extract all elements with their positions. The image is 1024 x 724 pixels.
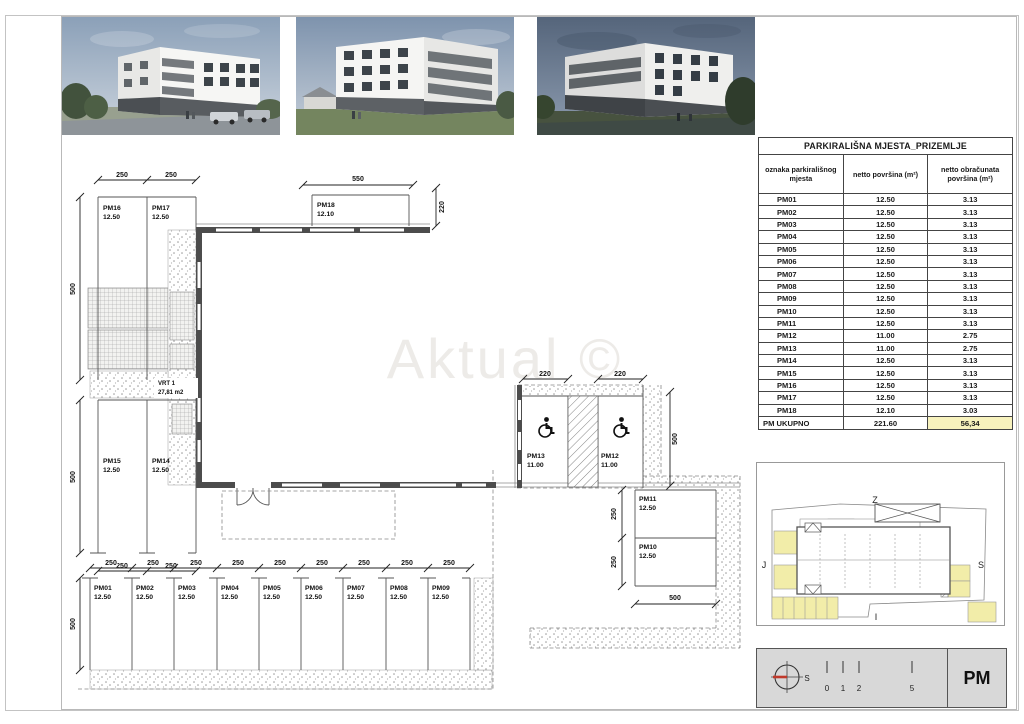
table-row: PM0512.503.13 [759,243,1013,255]
cell-netto: 12.50 [843,255,928,267]
cell-obracunata: 3.13 [928,317,1013,329]
svg-text:250: 250 [274,560,286,567]
table-row: PM1612.503.13 [759,379,1013,391]
svg-text:220: 220 [439,201,446,213]
total-obracunata: 56,34 [928,417,1013,430]
table-row: PM1211.002.75 [759,330,1013,342]
orientation-label-z: Z [872,495,878,505]
wheelchair-icon [614,417,630,437]
north-arrow-icon [771,661,803,693]
north-label: S [804,674,809,683]
svg-text:PM14: PM14 [152,458,170,465]
cell-obracunata: 3.03 [928,404,1013,416]
svg-text:PM01: PM01 [94,585,112,592]
svg-text:550: 550 [352,176,364,183]
svg-text:PM02: PM02 [136,585,154,592]
cell-obracunata: 3.13 [928,218,1013,230]
cell-stall-id: PM12 [759,330,844,342]
parking-table: PARKIRALIŠNA MJESTA_PRIZEMLJE oznaka par… [758,137,1013,430]
garden-label: VRT 1 27,81 m2 [154,378,198,398]
cell-netto: 12.50 [843,392,928,404]
svg-text:12.50: 12.50 [347,594,364,601]
orientation-label-i: I [875,612,878,622]
table-row: PM0212.503.13 [759,206,1013,218]
cell-obracunata: 3.13 [928,194,1013,206]
cell-stall-id: PM11 [759,317,844,329]
cell-netto: 12.50 [843,231,928,243]
cell-obracunata: 3.13 [928,255,1013,267]
svg-text:2: 2 [857,684,862,693]
svg-text:250: 250 [443,560,455,567]
cell-stall-id: PM08 [759,280,844,292]
svg-text:220: 220 [539,371,551,378]
table-row: PM0812.503.13 [759,280,1013,292]
watermark: Aktual © [387,327,623,390]
table-row: PM0612.503.13 [759,255,1013,267]
svg-text:250: 250 [147,560,159,567]
svg-text:12.10: 12.10 [317,211,334,218]
cell-netto: 12.50 [843,218,928,230]
cell-netto: 12.50 [843,367,928,379]
cell-obracunata: 3.13 [928,355,1013,367]
sheet-code: PM [964,668,991,689]
cell-obracunata: 3.13 [928,243,1013,255]
cell-stall-id: PM18 [759,404,844,416]
paved-surfaces [88,230,740,689]
ground-floor-parking-plan: Aktual © [55,148,755,708]
cell-netto: 11.00 [843,330,928,342]
svg-text:12.50: 12.50 [178,594,195,601]
svg-text:PM11: PM11 [639,496,657,503]
svg-text:12.50: 12.50 [639,505,656,512]
svg-text:12.50: 12.50 [152,214,169,221]
svg-text:12.50: 12.50 [639,553,656,560]
table-row: PM1112.503.13 [759,317,1013,329]
cell-netto: 12.10 [843,404,928,416]
cell-obracunata: 3.13 [928,367,1013,379]
cell-obracunata: 3.13 [928,305,1013,317]
svg-text:PM07: PM07 [347,585,365,592]
title-block: S 0 1 2 5 PM [756,648,1008,708]
svg-text:PM15: PM15 [103,458,121,465]
svg-text:12.50: 12.50 [432,594,449,601]
svg-text:PM13: PM13 [527,453,545,460]
cell-stall-id: PM03 [759,218,844,230]
wheelchair-icon [539,417,555,437]
svg-text:220: 220 [614,371,626,378]
cell-stall-id: PM04 [759,231,844,243]
parking-table-body: PM0112.503.13PM0212.503.13PM0312.503.13P… [759,194,1013,417]
svg-text:PM04: PM04 [221,585,239,592]
svg-text:250: 250 [358,560,370,567]
scale-bar-box: S 0 1 2 5 [756,648,948,708]
cell-stall-id: PM14 [759,355,844,367]
cell-stall-id: PM05 [759,243,844,255]
svg-text:250: 250 [316,560,328,567]
site-key-plan: Z J S I [756,462,1005,626]
cell-netto: 12.50 [843,379,928,391]
svg-text:12.50: 12.50 [103,214,120,221]
svg-text:500: 500 [70,618,77,630]
cell-stall-id: PM10 [759,305,844,317]
cell-netto: 12.50 [843,305,928,317]
cell-netto: 12.50 [843,268,928,280]
svg-text:PM12: PM12 [601,453,619,460]
col-header-netto: netto površina (m²) [843,155,928,194]
svg-text:PM06: PM06 [305,585,323,592]
entrance-door [222,488,395,539]
cell-obracunata: 2.75 [928,342,1013,354]
table-row: PM1012.503.13 [759,305,1013,317]
svg-text:500: 500 [669,595,681,602]
stall-group-pm01-pm09: 500 250 250 250 250 250 250 250 250 250 … [70,560,474,674]
table-row: PM1311.002.75 [759,342,1013,354]
col-header-oznaka: oznaka parkirališnog mjesta [759,155,844,194]
cell-stall-id: PM13 [759,342,844,354]
table-title: PARKIRALIŠNA MJESTA_PRIZEMLJE [759,138,1013,155]
cell-netto: 12.50 [843,317,928,329]
table-row: PM1512.503.13 [759,367,1013,379]
svg-text:12.50: 12.50 [94,594,111,601]
cell-stall-id: PM16 [759,379,844,391]
svg-text:12.50: 12.50 [305,594,322,601]
stall-group-pm11-pm10: 250 250 500 PM11 12.50 PM10 12.50 [611,486,720,608]
cell-stall-id: PM09 [759,293,844,305]
balconies [428,51,492,101]
cell-stall-id: PM17 [759,392,844,404]
building-render-photo-1 [62,17,280,135]
cell-netto: 12.50 [843,194,928,206]
svg-text:12.50: 12.50 [221,594,238,601]
graphic-scale: 0 1 2 5 [825,661,915,693]
svg-text:250: 250 [116,563,128,570]
svg-text:27,81 m2: 27,81 m2 [158,390,184,396]
table-row: PM0712.503.13 [759,268,1013,280]
svg-text:PM03: PM03 [178,585,196,592]
svg-text:250: 250 [611,556,618,568]
svg-text:12.50: 12.50 [263,594,280,601]
cell-stall-id: PM15 [759,367,844,379]
table-row: PM0312.503.13 [759,218,1013,230]
table-row: PM1812.103.03 [759,404,1013,416]
svg-text:12.50: 12.50 [152,467,169,474]
cell-netto: 12.50 [843,293,928,305]
svg-text:250: 250 [165,172,177,179]
table-total-row: PM UKUPNO 221.60 56,34 [759,417,1013,430]
cell-obracunata: 3.13 [928,280,1013,292]
svg-text:PM08: PM08 [390,585,408,592]
table-row: PM1712.503.13 [759,392,1013,404]
total-label: PM UKUPNO [759,417,844,430]
svg-text:250: 250 [611,508,618,520]
svg-text:250: 250 [232,560,244,567]
table-row: PM0412.503.13 [759,231,1013,243]
svg-text:VRT 1: VRT 1 [158,381,176,387]
building-render-photo-3 [537,17,755,135]
cell-netto: 12.50 [843,206,928,218]
cell-obracunata: 3.13 [928,379,1013,391]
svg-text:250: 250 [105,560,117,567]
total-netto: 221.60 [843,417,928,430]
cell-obracunata: 3.13 [928,206,1013,218]
cell-netto: 11.00 [843,342,928,354]
svg-text:12.50: 12.50 [390,594,407,601]
svg-text:PM05: PM05 [263,585,281,592]
sheet-code-box: PM [948,648,1007,708]
svg-text:PM09: PM09 [432,585,450,592]
svg-text:11.00: 11.00 [601,462,618,469]
cell-obracunata: 2.75 [928,330,1013,342]
cell-stall-id: PM02 [759,206,844,218]
cell-netto: 12.50 [843,280,928,292]
svg-text:5: 5 [910,684,915,693]
cell-obracunata: 3.13 [928,231,1013,243]
stall-group-pm18: 550 220 PM18 12.10 [299,176,446,230]
cell-stall-id: PM01 [759,194,844,206]
drawing-sheet: Aktual © [0,0,1024,724]
svg-text:12.50: 12.50 [136,594,153,601]
svg-text:1: 1 [841,684,846,693]
table-row: PM0912.503.13 [759,293,1013,305]
svg-text:0: 0 [825,684,830,693]
svg-text:PM10: PM10 [639,544,657,551]
svg-text:12.50: 12.50 [103,467,120,474]
svg-text:500: 500 [70,283,77,295]
cell-obracunata: 3.13 [928,392,1013,404]
cell-obracunata: 3.13 [928,293,1013,305]
orientation-label-j: J [762,560,767,570]
svg-text:250: 250 [401,560,413,567]
balconies [162,58,194,97]
svg-text:500: 500 [672,433,679,445]
cell-stall-id: PM07 [759,268,844,280]
cell-stall-id: PM06 [759,255,844,267]
svg-text:500: 500 [70,471,77,483]
svg-text:250: 250 [116,172,128,179]
svg-text:250: 250 [190,560,202,567]
svg-text:PM16: PM16 [103,205,121,212]
svg-text:PM17: PM17 [152,205,170,212]
svg-text:PM18: PM18 [317,202,335,209]
table-row: PM1412.503.13 [759,355,1013,367]
cell-netto: 12.50 [843,243,928,255]
col-header-obracunata: netto obračunata površina (m²) [928,155,1013,194]
cell-netto: 12.50 [843,355,928,367]
building-render-photo-2 [296,17,514,135]
orientation-label-s: S [978,560,984,570]
table-row: PM0112.503.13 [759,194,1013,206]
cell-obracunata: 3.13 [928,268,1013,280]
svg-text:11.00: 11.00 [527,462,544,469]
